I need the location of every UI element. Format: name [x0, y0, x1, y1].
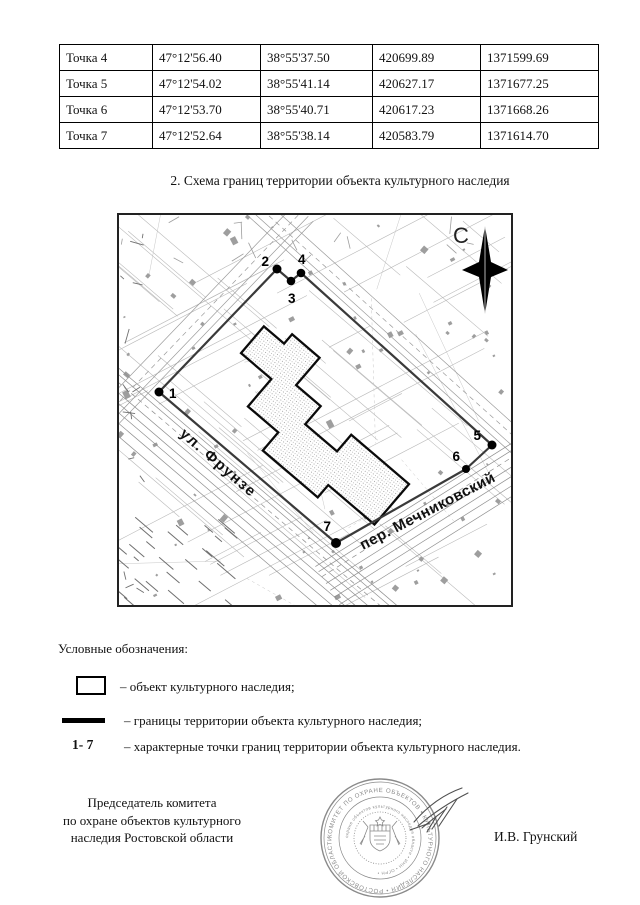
boundary-point-label: 7 [323, 519, 331, 534]
boundary-point-label: 3 [288, 291, 296, 306]
document-page: Точка 4 47°12'56.40 38°55'37.50 420699.8… [0, 0, 640, 905]
official-stamp: КОМИТЕТ ПО ОХРАНЕ ОБЪЕКТОВ • КУЛЬТУРНОГО… [318, 776, 488, 900]
compass-north-label: С [453, 223, 469, 248]
legend-points-range: 1- 7 [72, 737, 93, 753]
x-coordinate-cell: 420699.89 [373, 45, 481, 71]
boundary-point-label: 1 [169, 386, 177, 401]
boundary-point-dot [155, 388, 164, 397]
legend-boundary-symbol [62, 718, 105, 723]
x-coordinate-cell: 420583.79 [373, 123, 481, 149]
legend-item-label: – характерные точки границ территории об… [124, 739, 521, 755]
coordinates-table: Точка 4 47°12'56.40 38°55'37.50 420699.8… [59, 44, 599, 149]
signer-position-line: по охране объектов культурного [38, 812, 266, 830]
boundary-point-dot [297, 269, 306, 278]
boundary-point-label: 6 [452, 449, 460, 464]
legend-item-label: – границы территории объекта культурного… [124, 713, 422, 729]
signer-name: И.В. Грунский [494, 829, 577, 845]
longitude-cell: 38°55'38.14 [261, 123, 373, 149]
legend-item-label: – объект культурного наследия; [120, 679, 295, 695]
boundary-point-dot [331, 538, 341, 548]
longitude-cell: 38°55'37.50 [261, 45, 373, 71]
boundary-point-dot [287, 277, 296, 286]
signer-position: Председатель комитета по охране объектов… [38, 794, 266, 847]
latitude-cell: 47°12'53.70 [153, 97, 261, 123]
point-name-cell: Точка 6 [60, 97, 153, 123]
legend-title: Условные обозначения: [58, 641, 188, 657]
boundary-point-dot [488, 441, 497, 450]
boundary-point-dot [462, 465, 470, 473]
y-coordinate-cell: 1371668.26 [481, 97, 599, 123]
signer-position-line: Председатель комитета [38, 794, 266, 812]
point-name-cell: Точка 7 [60, 123, 153, 149]
table-row: Точка 6 47°12'53.70 38°55'40.71 420617.2… [60, 97, 599, 123]
boundary-point-dot [273, 265, 282, 274]
table-row: Точка 5 47°12'54.02 38°55'41.14 420627.1… [60, 71, 599, 97]
boundary-point-label: 4 [298, 252, 306, 267]
x-coordinate-cell: 420627.17 [373, 71, 481, 97]
boundary-point-label: 5 [473, 428, 481, 443]
x-coordinate-cell: 420617.23 [373, 97, 481, 123]
latitude-cell: 47°12'54.02 [153, 71, 261, 97]
legend-object-symbol [76, 676, 106, 695]
latitude-cell: 47°12'52.64 [153, 123, 261, 149]
table-row: Точка 4 47°12'56.40 38°55'37.50 420699.8… [60, 45, 599, 71]
site-map: 1 2 3 4 5 6 7 ул. Фрунзе пер. Мечниковск… [117, 213, 513, 607]
point-name-cell: Точка 5 [60, 71, 153, 97]
signer-position-line: наследия Ростовской области [38, 829, 266, 847]
latitude-cell: 47°12'56.40 [153, 45, 261, 71]
boundary-point-label: 2 [261, 254, 269, 269]
coat-of-arms-icon [360, 817, 400, 851]
longitude-cell: 38°55'40.71 [261, 97, 373, 123]
table-row: Точка 7 47°12'52.64 38°55'38.14 420583.7… [60, 123, 599, 149]
y-coordinate-cell: 1371599.69 [481, 45, 599, 71]
longitude-cell: 38°55'41.14 [261, 71, 373, 97]
section-title: 2. Схема границ территории объекта культ… [40, 173, 640, 189]
point-name-cell: Точка 4 [60, 45, 153, 71]
y-coordinate-cell: 1371677.25 [481, 71, 599, 97]
y-coordinate-cell: 1371614.70 [481, 123, 599, 149]
